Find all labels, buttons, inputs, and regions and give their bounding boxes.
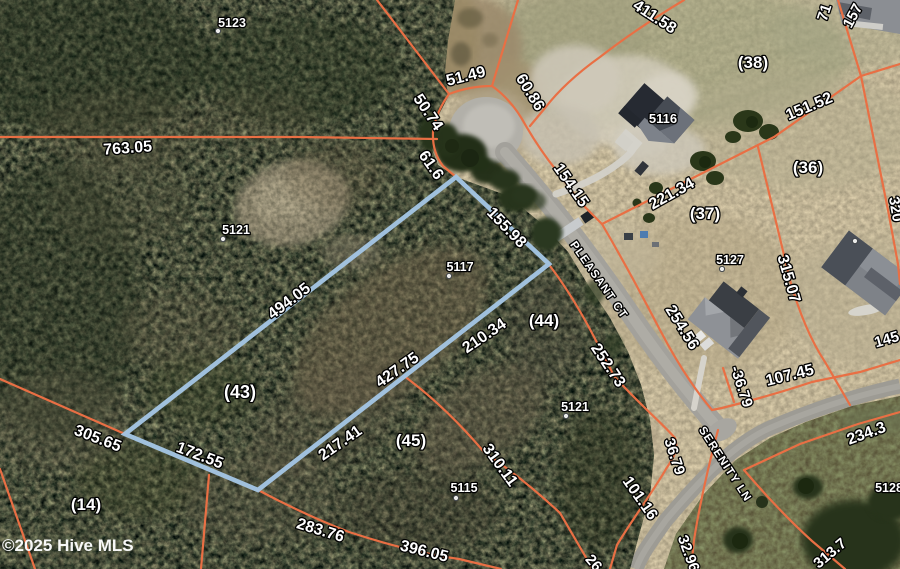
svg-text:5116: 5116 — [649, 111, 677, 126]
svg-text:©2025 Hive MLS: ©2025 Hive MLS — [2, 536, 134, 555]
svg-text:763.05: 763.05 — [103, 138, 153, 158]
svg-text:5115: 5115 — [450, 481, 477, 495]
svg-text:5121: 5121 — [222, 223, 250, 237]
svg-text:(38): (38) — [738, 53, 768, 72]
svg-text:(14): (14) — [71, 495, 101, 514]
svg-text:5121: 5121 — [561, 400, 589, 414]
svg-text:5123: 5123 — [218, 16, 246, 30]
svg-text:(36): (36) — [793, 158, 823, 177]
svg-text:(37): (37) — [690, 204, 720, 223]
svg-text:(45): (45) — [396, 431, 426, 450]
svg-text:5127: 5127 — [716, 253, 744, 267]
svg-text:5128: 5128 — [875, 481, 900, 495]
svg-text:(44): (44) — [529, 311, 559, 330]
svg-text:5117: 5117 — [446, 260, 473, 274]
svg-text:(43): (43) — [224, 382, 256, 402]
